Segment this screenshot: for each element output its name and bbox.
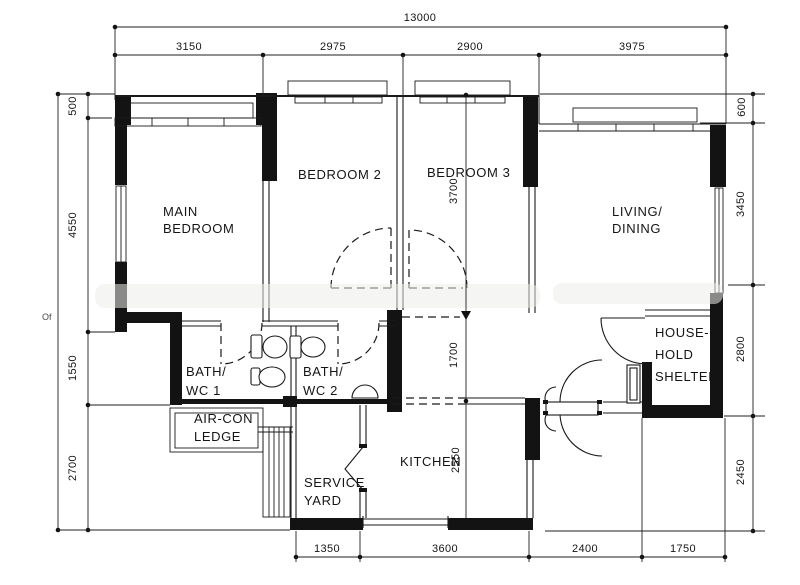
dim-bottom-2: 2400 <box>572 543 598 555</box>
room-label-bedroom-2: BEDROOM 2 <box>298 167 381 182</box>
dim-bottom-0: 1350 <box>314 543 340 555</box>
room-label-shelter-3: SHELTER <box>655 369 718 384</box>
floor-plan-page: 13000 3150 2975 2900 3975 500 4550 1550 … <box>0 0 800 585</box>
room-label-service-yard-1: SERVICE <box>304 475 365 490</box>
room-labels: MAIN BEDROOM BEDROOM 2 BEDROOM 3 LIVING/… <box>42 165 718 508</box>
dim-right-3: 2450 <box>735 459 747 485</box>
dim-left-1: 4550 <box>67 212 79 238</box>
shelter-duct-icon <box>627 365 640 403</box>
room-label-aircon-1: AIR-CON <box>194 411 253 426</box>
room-label-living-1: LIVING/ <box>612 204 662 219</box>
room-label-aircon-2: LEDGE <box>194 429 241 444</box>
dim-bottom-1: 3600 <box>432 543 458 555</box>
main-bedroom-top-window <box>115 103 261 126</box>
bath2-door-arc <box>338 323 379 364</box>
dim-interior-0: 3700 <box>448 178 460 204</box>
dim-top-3: 3975 <box>619 41 645 53</box>
bath2-toilet-icon <box>290 336 325 358</box>
main-bedroom-left-window <box>116 186 126 262</box>
doors <box>221 228 646 492</box>
dim-interior-1: 1700 <box>448 342 460 368</box>
bath2-basin-icon <box>352 385 378 398</box>
dim-right-1: 3450 <box>735 191 747 217</box>
room-label-shelter-1: HOUSE- <box>655 325 709 340</box>
windows <box>115 81 723 293</box>
bedroom2-door-arc <box>331 228 391 288</box>
dim-total-width: 13000 <box>404 12 437 24</box>
watermark-artifact-text: Of <box>42 312 52 322</box>
dim-top-2: 2900 <box>457 41 483 53</box>
dim-left-0: 500 <box>67 96 79 116</box>
scan-smudges <box>95 283 723 308</box>
room-label-kitchen: KITCHEN <box>400 454 461 469</box>
bedroom3-door-arc <box>409 230 467 288</box>
bath1-toilet-icon <box>251 335 287 358</box>
shelter-door-arc <box>601 318 646 364</box>
fixtures <box>170 335 640 517</box>
living-window <box>573 108 697 131</box>
dim-right-0: 600 <box>736 97 748 117</box>
dim-bottom-3: 1750 <box>670 543 696 555</box>
dim-right-2: 2800 <box>735 336 747 362</box>
room-label-service-yard-2: YARD <box>304 493 342 508</box>
room-label-bath2-2: WC 2 <box>303 383 338 398</box>
bath1-basin-icon <box>251 367 285 387</box>
laundry-rack-icon <box>258 427 293 517</box>
floor-plan-drawing: 13000 3150 2975 2900 3975 500 4550 1550 … <box>0 0 800 585</box>
dim-left-2: 1550 <box>67 355 79 381</box>
room-label-bath1-1: BATH/ <box>186 364 226 379</box>
room-label-main-bedroom-2: BEDROOM <box>163 221 234 236</box>
bedroom3-window <box>415 81 510 103</box>
dim-left-3: 2700 <box>67 455 79 481</box>
room-label-main-bedroom-1: MAIN <box>163 204 198 219</box>
bedroom2-window <box>288 81 387 103</box>
dim-top-1: 2975 <box>320 41 346 53</box>
dim-top-0: 3150 <box>176 41 202 53</box>
room-label-bedroom-3: BEDROOM 3 <box>427 165 510 180</box>
main-entrance-door <box>543 360 602 456</box>
room-label-shelter-2: HOLD <box>655 347 694 362</box>
room-label-living-2: DINING <box>612 221 661 236</box>
room-label-bath2-1: BATH/ <box>303 364 343 379</box>
room-label-bath1-2: WC 1 <box>186 383 221 398</box>
living-right-window <box>715 188 723 293</box>
